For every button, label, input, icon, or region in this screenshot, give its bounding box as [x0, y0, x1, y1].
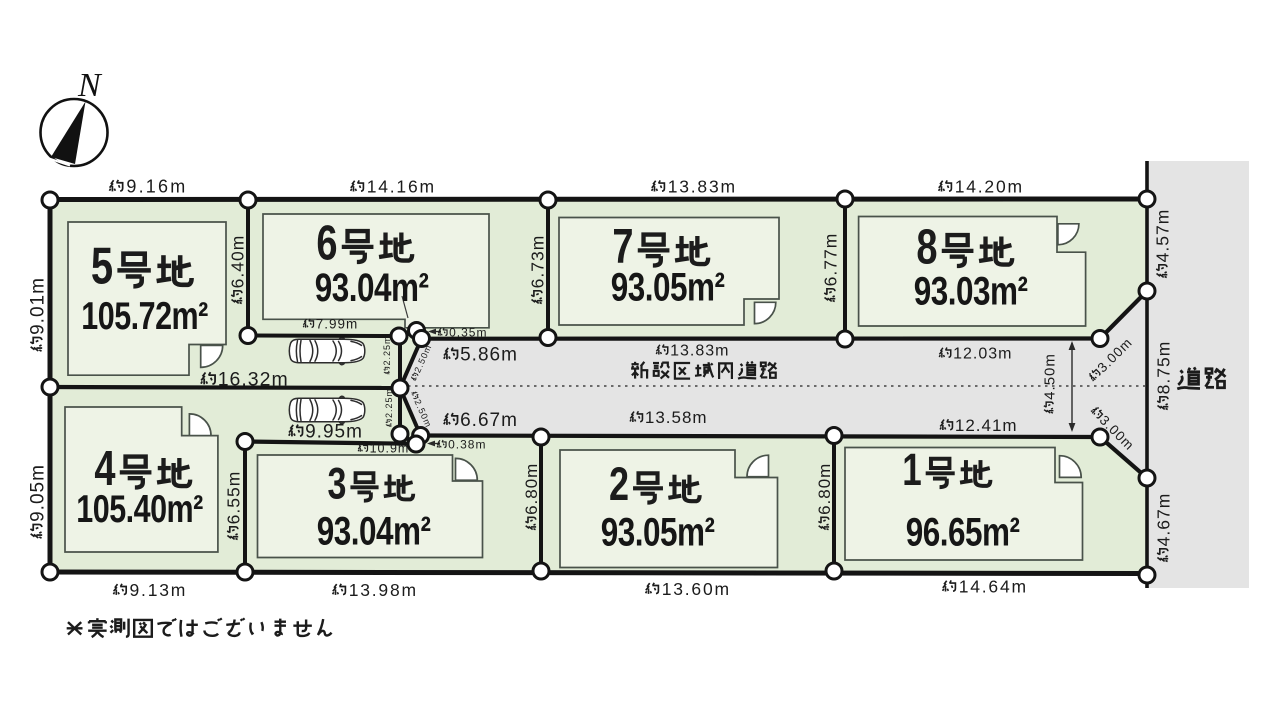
svg-text:14.64m: 14.64m	[959, 577, 1028, 597]
svg-text:12.03m: 12.03m	[953, 346, 1012, 363]
svg-text:1: 1	[902, 443, 921, 495]
svg-text:5: 5	[91, 237, 113, 295]
svg-text:105.40m²: 105.40m²	[76, 488, 203, 531]
svg-text:6.80m: 6.80m	[815, 463, 834, 515]
svg-text:8: 8	[916, 220, 937, 275]
svg-text:93.05m²: 93.05m²	[611, 264, 725, 310]
svg-text:6.77m: 6.77m	[820, 233, 840, 287]
svg-text:93.03m²: 93.03m²	[914, 268, 1028, 314]
svg-text:93.04m²: 93.04m²	[315, 264, 429, 310]
svg-text:13.58m: 13.58m	[645, 408, 708, 427]
svg-text:2.25m: 2.25m	[382, 335, 392, 365]
svg-text:13.83m: 13.83m	[670, 343, 729, 360]
svg-text:10.9m: 10.9m	[370, 442, 410, 456]
svg-text:2: 2	[609, 458, 629, 511]
svg-text:93.05m²: 93.05m²	[601, 509, 715, 555]
svg-text:N: N	[77, 67, 103, 104]
svg-text:13.83m: 13.83m	[668, 177, 737, 197]
svg-text:6.80m: 6.80m	[522, 463, 541, 515]
svg-text:9.05m: 9.05m	[27, 464, 48, 522]
svg-text:6.55m: 6.55m	[223, 471, 243, 525]
svg-text:13.60m: 13.60m	[662, 579, 731, 599]
svg-text:14.20m: 14.20m	[955, 177, 1024, 197]
svg-text:2.25m: 2.25m	[384, 388, 394, 418]
svg-text:6.67m: 6.67m	[460, 410, 518, 431]
svg-text:9.16m: 9.16m	[126, 177, 187, 197]
svg-text:16.32m: 16.32m	[218, 369, 289, 391]
svg-text:12.41m: 12.41m	[955, 416, 1018, 435]
svg-text:7.99m: 7.99m	[316, 317, 359, 332]
svg-text:4.57m: 4.57m	[1152, 209, 1172, 263]
svg-text:0.35m: 0.35m	[449, 326, 487, 340]
svg-text:6.40m: 6.40m	[227, 235, 247, 289]
svg-text:8.75m: 8.75m	[1153, 341, 1173, 395]
svg-text:96.65m²: 96.65m²	[906, 509, 1020, 555]
svg-text:3: 3	[328, 459, 347, 508]
svg-text:93.04m²: 93.04m²	[317, 508, 431, 554]
svg-text:4.50m: 4.50m	[1041, 353, 1058, 400]
svg-text:4.67m: 4.67m	[1153, 493, 1173, 547]
svg-text:6: 6	[316, 216, 337, 271]
svg-text:5.86m: 5.86m	[460, 345, 518, 366]
svg-text:9.01m: 9.01m	[27, 277, 48, 335]
svg-text:14.16m: 14.16m	[367, 177, 436, 197]
svg-text:0.38m: 0.38m	[448, 438, 486, 452]
svg-text:6.73m: 6.73m	[527, 235, 547, 289]
svg-text:13.98m: 13.98m	[349, 580, 418, 600]
svg-text:9.95m: 9.95m	[305, 422, 363, 443]
svg-text:9.13m: 9.13m	[130, 580, 188, 600]
svg-text:105.72m²: 105.72m²	[81, 295, 208, 338]
